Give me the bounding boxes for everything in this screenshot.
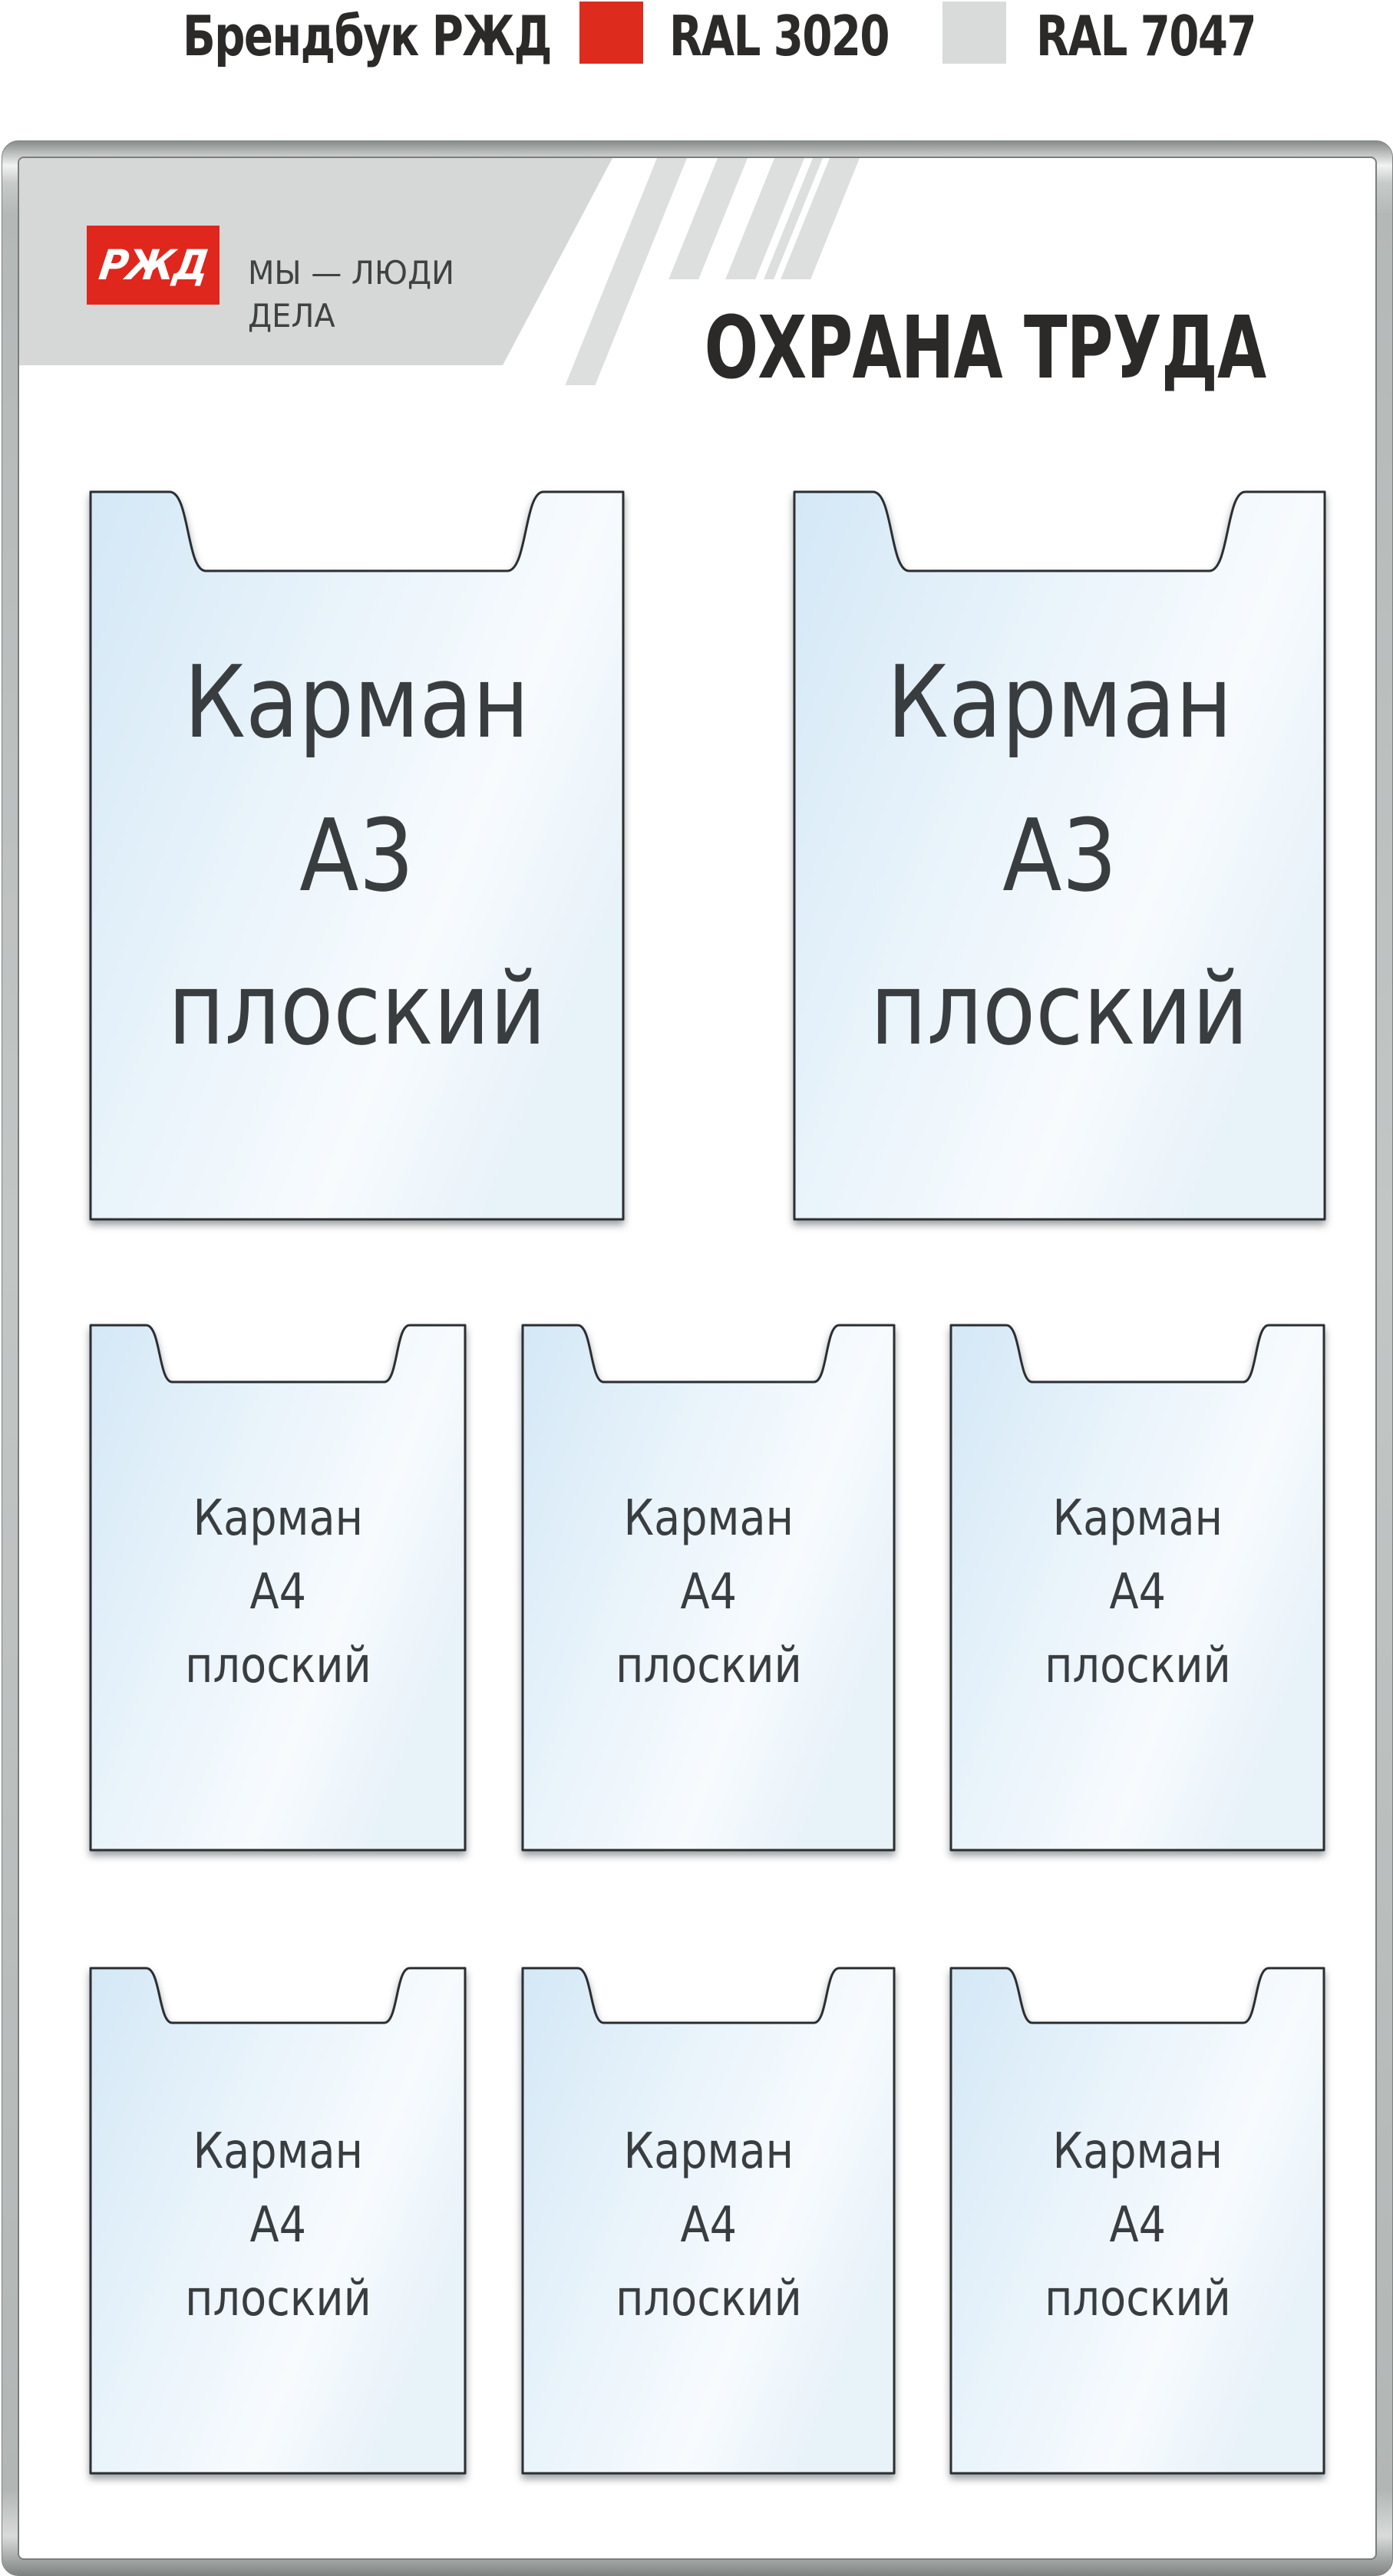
- stand-board: РЖД МЫ — ЛЮДИ ДЕЛА ОХРАНА ТРУДА Карман: [18, 157, 1377, 2560]
- ral-7047-swatch: [942, 2, 1006, 64]
- pocket-label-line: плоский: [185, 1629, 371, 1703]
- pocket-a4-6[interactable]: Карман А4 плоский: [949, 1967, 1325, 2475]
- pocket-label-line: плоский: [616, 2262, 802, 2336]
- pocket-label-line: Карман: [623, 2115, 794, 2188]
- pocket-a4-1[interactable]: Карман А4 плоский: [89, 1324, 467, 1852]
- pocket-label-line: плоский: [1045, 2262, 1231, 2336]
- pocket-label: Карман А3 плоский: [793, 490, 1326, 1221]
- pocket-a3-2[interactable]: Карман А3 плоский: [793, 490, 1326, 1221]
- pocket-label-line: Карман: [184, 625, 530, 779]
- pocket-label: Карман А4 плоский: [89, 1324, 467, 1852]
- stand-mockup-page: Брендбук РЖД RAL 3020 RAL 7047 РЖД МЫ — …: [0, 0, 1393, 2576]
- pocket-label: Карман А4 плоский: [521, 1967, 896, 2475]
- pocket-a4-2[interactable]: Карман А4 плоский: [521, 1324, 896, 1852]
- pocket-label-line: Карман: [1052, 2115, 1223, 2188]
- ral-7047-label: RAL 7047: [1036, 3, 1256, 69]
- pocket-label-line: А4: [1109, 1555, 1166, 1629]
- pocket-label-line: Карман: [623, 1482, 794, 1555]
- pocket-a3-1[interactable]: Карман А3 плоский: [89, 490, 625, 1221]
- pocket-label-line: Карман: [193, 1482, 363, 1555]
- pocket-label: Карман А3 плоский: [89, 490, 625, 1221]
- pocket-label-line: Карман: [887, 625, 1233, 779]
- pocket-label-line: А4: [249, 1555, 306, 1629]
- pocket-label-line: А4: [1109, 2188, 1166, 2262]
- pocket-label: Карман А4 плоский: [949, 1967, 1325, 2475]
- pocket-label-line: плоский: [616, 1629, 802, 1703]
- board-title-text: ОХРАНА ТРУДА: [704, 312, 1266, 385]
- brandbook-label: Брендбук РЖД: [183, 3, 551, 69]
- pocket-label-line: плоский: [870, 932, 1249, 1086]
- pocket-a4-5[interactable]: Карман А4 плоский: [521, 1967, 896, 2475]
- pocket-a4-4[interactable]: Карман А4 плоский: [89, 1967, 467, 2475]
- ral-3020-swatch: [579, 2, 643, 64]
- pocket-label-line: А4: [680, 2188, 737, 2262]
- pocket-label-line: А4: [249, 2188, 306, 2262]
- pocket-label-line: А4: [680, 1555, 737, 1629]
- ral-3020-label: RAL 3020: [669, 3, 889, 69]
- spec-bar: Брендбук РЖД RAL 3020 RAL 7047: [0, 0, 1393, 77]
- pocket-label: Карман А4 плоский: [949, 1324, 1325, 1852]
- pocket-label-line: Карман: [1052, 1482, 1223, 1555]
- rzd-logo-text: РЖД: [96, 241, 210, 289]
- stand-frame: РЖД МЫ — ЛЮДИ ДЕЛА ОХРАНА ТРУДА Карман: [2, 140, 1393, 2576]
- rzd-logo: РЖД: [87, 226, 220, 305]
- slogan-line-1: МЫ — ЛЮДИ: [248, 252, 454, 295]
- pocket-label-line: плоский: [1045, 1629, 1231, 1703]
- board-title: ОХРАНА ТРУДА: [714, 312, 1256, 385]
- pocket-a4-3[interactable]: Карман А4 плоский: [949, 1324, 1325, 1852]
- slogan-line-2: ДЕЛА: [248, 295, 454, 338]
- pocket-label: Карман А4 плоский: [89, 1967, 467, 2475]
- pocket-label-line: плоский: [185, 2262, 371, 2336]
- pocket-label-line: плоский: [168, 932, 546, 1086]
- pocket-label-line: А3: [1002, 779, 1117, 932]
- slogan: МЫ — ЛЮДИ ДЕЛА: [248, 252, 454, 338]
- pocket-label-line: А3: [299, 779, 414, 932]
- pocket-label: Карман А4 плоский: [521, 1324, 896, 1852]
- pocket-label-line: Карман: [193, 2115, 363, 2188]
